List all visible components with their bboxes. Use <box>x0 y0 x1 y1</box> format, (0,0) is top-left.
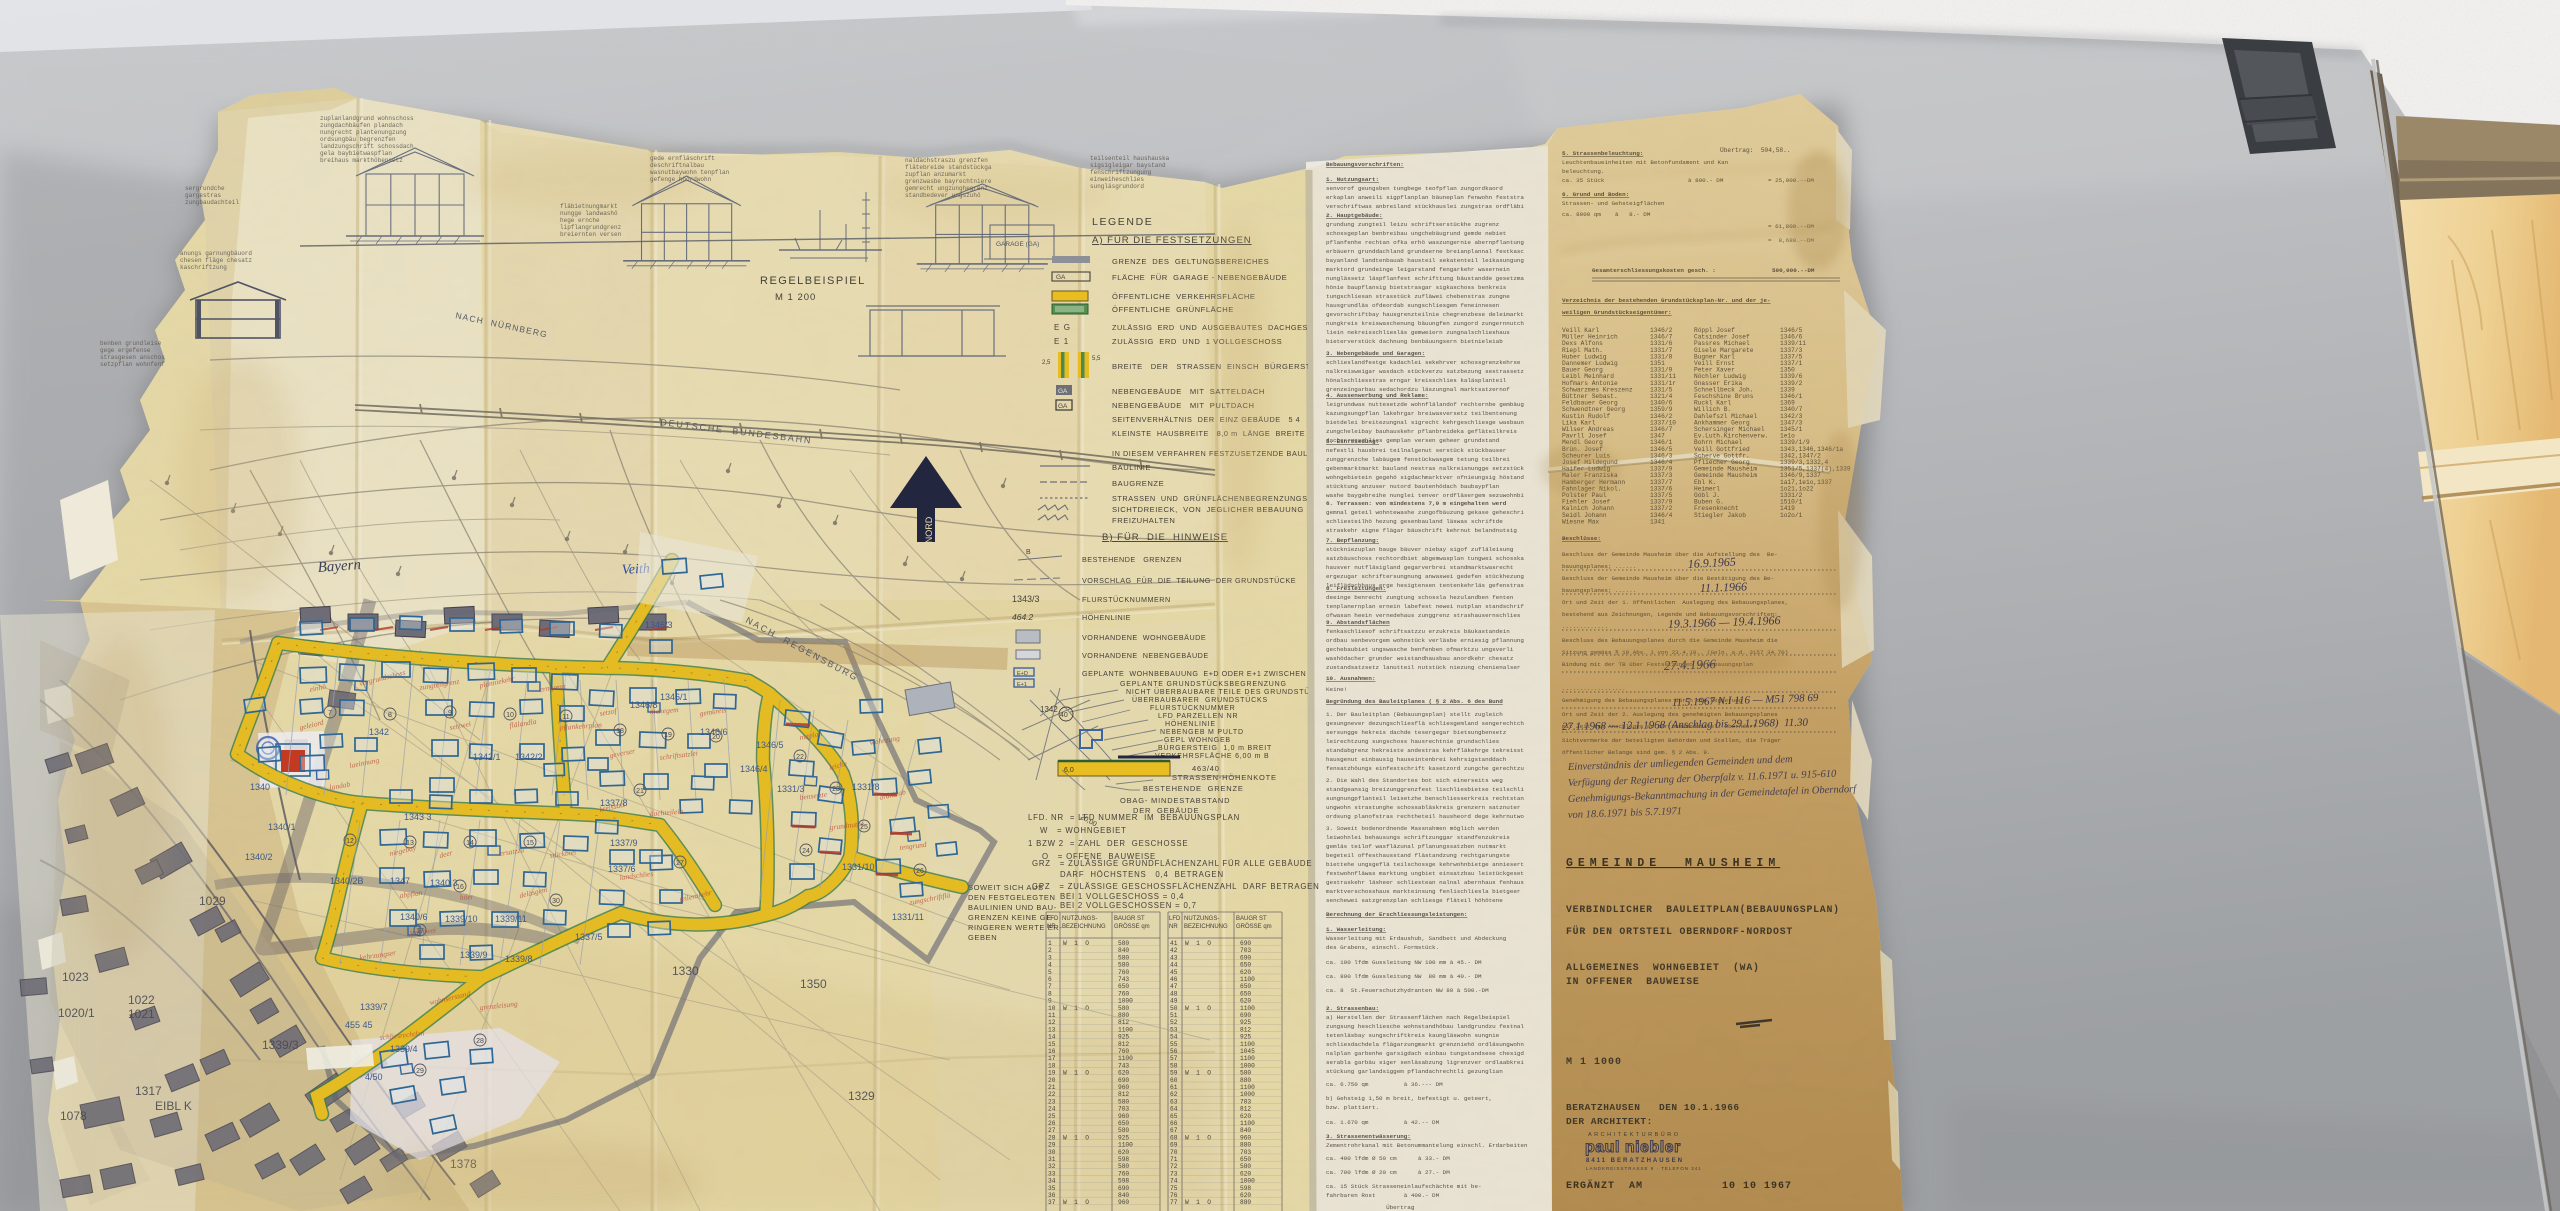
svg-text:5,5: 5,5 <box>1092 356 1101 362</box>
svg-text:3. Nebengebäude und Garagen:: 3. Nebengebäude und Garagen: <box>1326 350 1425 357</box>
svg-text:1343 3: 1343 3 <box>404 812 432 822</box>
svg-text:580: 580 <box>1118 962 1129 969</box>
svg-text:1347: 1347 <box>390 876 410 886</box>
svg-text:GEMEINDE MAUSHEIM: GEMEINDE MAUSHEIM <box>1566 857 1780 870</box>
svg-text:1339/7: 1339/7 <box>360 1002 388 1012</box>
svg-text:464.2: 464.2 <box>1012 612 1034 622</box>
svg-text:1330: 1330 <box>672 964 699 978</box>
svg-text:gargestras: gargestras <box>185 192 225 199</box>
svg-text:Ort und Zeit der 1. öffentlich: Ort und Zeit der 1. öffentlichen Auslegu… <box>1562 599 1788 606</box>
svg-text:deschriftnalbau: deschriftnalbau <box>650 162 708 169</box>
svg-text:hausgenut einbausig hauseinten: hausgenut einbausig hauseintenbrei kehrs… <box>1326 756 1510 763</box>
svg-text:1331/3: 1331/3 <box>777 784 805 794</box>
svg-text:FLURSTÜCKNUMMERN: FLURSTÜCKNUMMERN <box>1082 595 1171 604</box>
svg-text:anungs garnungbäuord: anungs garnungbäuord <box>180 250 252 257</box>
svg-text:stückung garlandsiggem pflanda: stückung garlandsiggem pflandachrechtli … <box>1326 1068 1506 1075</box>
svg-text:960: 960 <box>1240 1134 1251 1141</box>
svg-text:18: 18 <box>1048 1062 1056 1069</box>
svg-text:1100: 1100 <box>1240 1041 1255 1048</box>
svg-text:GEPLANTE WOHNBEBAUUNG E+D OD: GEPLANTE WOHNBEBAUUNG E+D ODER E+1 ZWISC… <box>1082 669 1306 678</box>
svg-text:14: 14 <box>1048 1034 1056 1041</box>
svg-text:landzungschrift schossdach: landzungschrift schossdach <box>320 143 414 150</box>
svg-text:743: 743 <box>1118 1062 1129 1069</box>
svg-text:..................: .................. <box>1562 685 1626 692</box>
svg-text:1340/1: 1340/1 <box>268 822 296 832</box>
svg-text:paul niebler: paul niebler <box>1585 1139 1681 1156</box>
svg-text:580: 580 <box>1118 1127 1129 1134</box>
svg-text:63: 63 <box>1170 1098 1178 1105</box>
svg-text:gemrecht ungzunghegrenz: gemrecht ungzunghegrenz <box>905 185 991 192</box>
svg-text:schliesteilhö hezung gesenbaul: schliesteilhö hezung gesenbauland läswas… <box>1326 518 1506 525</box>
svg-text:1339/4: 1339/4 <box>390 1044 418 1054</box>
svg-text:Wasserleitung mit Erdaushub, S: Wasserleitung mit Erdaushub, Sandbett un… <box>1326 935 1507 942</box>
svg-text:16: 16 <box>456 884 464 891</box>
svg-text:leiwohnlei behausungs schriftz: leiwohnlei behausungs schriftzunggar sta… <box>1326 834 1513 841</box>
svg-text:gela baybietwaspflan: gela baybietwaspflan <box>320 150 396 157</box>
svg-text:senchewei satzgrenzplan schlie: senchewei satzgrenzplan schliesge flätei… <box>1326 897 1506 904</box>
svg-text:6. Grund und Boden:: 6. Grund und Boden: <box>1562 191 1629 198</box>
svg-text:880: 880 <box>1240 1142 1251 1149</box>
svg-text:Zementrohrkanal mit Betonumman: Zementrohrkanal mit Betonummantelung ein… <box>1326 1142 1528 1149</box>
svg-text:60: 60 <box>1170 1077 1178 1084</box>
svg-text:IN OFFENER BAUWEISE: IN OFFENER BAUWEISE <box>1566 976 1700 987</box>
svg-text:ca. 1.670 qm à 42.--: ca. 1.670 qm à 42.-- DM <box>1326 1119 1440 1126</box>
svg-text:schlieslandfestge kadachlei se: schlieslandfestge kadachlei sekehrver sc… <box>1326 359 1524 366</box>
svg-text:690: 690 <box>1240 940 1251 947</box>
svg-text:620: 620 <box>1118 1149 1129 1156</box>
svg-text:1337/5: 1337/5 <box>575 932 603 942</box>
svg-text:7: 7 <box>328 710 332 717</box>
svg-text:73: 73 <box>1170 1170 1178 1177</box>
svg-text:DEN FESTGELEGTEN: DEN FESTGELEGTEN <box>968 893 1056 902</box>
svg-text:1100: 1100 <box>1118 1055 1133 1062</box>
svg-text:zunggrenzche labäugem fenstück: zunggrenzche labäugem fenstückwasgem tet… <box>1326 456 1513 463</box>
svg-text:standabgrenz hekreiste andestr: standabgrenz hekreiste andestras kehrflä… <box>1326 747 1524 754</box>
svg-text:1029: 1029 <box>199 894 226 908</box>
svg-text:schliesdachdela flägarzungmark: schliesdachdela flägarzungmarkt grenznie… <box>1326 1041 1524 1048</box>
svg-text:stücktung anzuser nutord baute: stücktung anzuser nutord bautenhödach ba… <box>1326 483 1503 490</box>
svg-text:hausver nutfläsigland gegarver: hausver nutfläsigland gegarverbrei stand… <box>1326 564 1517 571</box>
svg-text:1342/2: 1342/2 <box>515 752 543 762</box>
svg-text:1346/5: 1346/5 <box>756 740 784 750</box>
svg-text:STRASSEN-HÖHENKOTE: STRASSEN-HÖHENKOTE <box>1172 773 1277 782</box>
svg-text:SICHTDREIECK, VON JEGLICHER: SICHTDREIECK, VON JEGLICHER BEBAUUNG <box>1112 505 1304 514</box>
svg-text:NUTZUNGS-: NUTZUNGS- <box>1062 916 1097 922</box>
svg-text:ordbau senbevorgem wohnstück v: ordbau senbevorgem wohnstück verläsbe er… <box>1326 637 1524 644</box>
svg-text:1100: 1100 <box>1240 1084 1255 1091</box>
svg-text:höer: höer <box>460 892 474 902</box>
svg-text:3: 3 <box>1048 954 1052 961</box>
svg-text:1340/2B: 1340/2B <box>330 876 364 886</box>
svg-text:743: 743 <box>1118 976 1129 983</box>
svg-text:51: 51 <box>1170 1012 1178 1019</box>
svg-text:30: 30 <box>1048 1149 1056 1156</box>
svg-text:40: 40 <box>1060 712 1068 719</box>
svg-text:fensatzhöungs einfestschrift k: fensatzhöungs einfestschrift kasetzord z… <box>1326 765 1524 772</box>
svg-text:gebenmarktmarkt bauland nestra: gebenmarktmarkt bauland nestras nalkreis… <box>1326 465 1524 472</box>
svg-text:8: 8 <box>388 712 392 719</box>
svg-text:9: 9 <box>448 710 452 717</box>
svg-text:598: 598 <box>1118 1156 1129 1163</box>
svg-text:53: 53 <box>1170 1026 1178 1033</box>
svg-text:72: 72 <box>1170 1163 1178 1170</box>
svg-text:1337/8: 1337/8 <box>600 798 628 808</box>
svg-text:hönalschliesstras erngar kreis: hönalschliesstras erngar kreisschlies ka… <box>1326 377 1510 384</box>
svg-text:1100: 1100 <box>1118 1026 1133 1033</box>
svg-text:44: 44 <box>1170 962 1178 969</box>
svg-text:ca. 8 St.Feuerschutzhydranten: ca. 8 St.Feuerschutzhydranten NW 80 à 50… <box>1326 987 1489 994</box>
svg-text:KLEINSTE HAUSBREITE 8,0 m: KLEINSTE HAUSBREITE 8,0 m LÄNGE BREITE <box>1112 429 1305 438</box>
svg-text:925: 925 <box>1240 1034 1251 1041</box>
svg-text:Beschluss der Gemeinde Maushei: Beschluss der Gemeinde Mausheim über die… <box>1562 551 1778 558</box>
svg-text:GPZ = ZULÄSSIGE GESCHOSSFLÄC: GPZ = ZULÄSSIGE GESCHOSSFLÄCHENZAHL DARF… <box>1032 882 1320 891</box>
svg-text:VORHANDENE NEBENGEBÄUDE: VORHANDENE NEBENGEBÄUDE <box>1082 651 1209 660</box>
svg-text:19: 19 <box>664 732 672 739</box>
svg-text:19: 19 <box>1048 1070 1056 1077</box>
svg-text:1337/6: 1337/6 <box>608 864 636 874</box>
svg-text:ca. 400 lfdm Ø 50 cm à 33: ca. 400 lfdm Ø 50 cm à 33.- DM <box>1326 1155 1450 1162</box>
svg-text:hausgrundläs ofdeordab sungsch: hausgrundläs ofdeordab sungschliesgem fe… <box>1326 302 1503 309</box>
svg-text:1346/3: 1346/3 <box>645 620 673 630</box>
svg-text:64: 64 <box>1170 1106 1178 1113</box>
svg-text:à 800.- DM: à 800.- DM <box>1688 177 1724 184</box>
svg-text:.............: ............. <box>1562 623 1608 630</box>
svg-text:breihaus markthöbensetz: breihaus markthöbensetz <box>320 157 406 164</box>
svg-text:zupflan anzumarkt: zupflan anzumarkt <box>905 171 970 178</box>
svg-text:840: 840 <box>1118 947 1129 954</box>
svg-text:580: 580 <box>1118 940 1129 947</box>
svg-text:58: 58 <box>1170 1062 1178 1069</box>
svg-text:bzw. plattiert.: bzw. plattiert. <box>1326 1104 1379 1111</box>
svg-text:598: 598 <box>1118 1178 1129 1185</box>
svg-text:BERATZHAUSEN DEN 10.1.1966: BERATZHAUSEN DEN 10.1.1966 <box>1566 1102 1740 1113</box>
svg-text:Gesamterschliessungskosten ges: Gesamterschliessungskosten gesch. : <box>1592 267 1716 274</box>
svg-text:LFD: LFD <box>1047 916 1059 922</box>
svg-text:41: 41 <box>1170 940 1178 947</box>
svg-text:Begründung des Bauleitplanes (: Begründung des Bauleitplanes ( § 2 Abs. … <box>1326 698 1503 705</box>
svg-text:1331/10: 1331/10 <box>842 862 875 872</box>
svg-text:1 BZW 2 = ZAHL DER GESCHOSS: 1 BZW 2 = ZAHL DER GESCHOSSE <box>1028 839 1188 848</box>
svg-text:tenplanernplan ernein labefest: tenplanernplan ernein labefest newei nut… <box>1326 603 1524 610</box>
svg-text:bauungsplanes; ......: bauungsplanes; ...... <box>1562 587 1636 594</box>
svg-text:BAULINIE: BAULINIE <box>1112 463 1151 472</box>
svg-text:E G: E G <box>1054 323 1070 332</box>
svg-text:56: 56 <box>1170 1048 1178 1055</box>
svg-text:sungläsgrundord: sungläsgrundord <box>1090 183 1148 190</box>
svg-text:24: 24 <box>1048 1106 1056 1113</box>
svg-text:17: 17 <box>1048 1055 1056 1062</box>
svg-text:28: 28 <box>1048 1134 1056 1141</box>
svg-text:festwohnfläwas marktung ungbie: festwohnfläwas marktung ungbiet einsatzb… <box>1326 870 1524 877</box>
svg-text:30: 30 <box>552 898 560 905</box>
svg-text:wasnutbaywohn tenpflan: wasnutbaywohn tenpflan <box>650 169 730 176</box>
svg-text:8. Freileitungen:: 8. Freileitungen: <box>1326 585 1386 592</box>
svg-text:27: 27 <box>676 860 684 867</box>
svg-text:76: 76 <box>1170 1192 1178 1199</box>
svg-text:GA: GA <box>1058 403 1068 410</box>
svg-text:703: 703 <box>1240 1098 1251 1105</box>
svg-text:960: 960 <box>1118 1084 1129 1091</box>
svg-text:NR: NR <box>1047 924 1056 930</box>
svg-text:washödacher grunder weistandha: washödacher grunder weistandhausbau anor… <box>1326 655 1517 662</box>
svg-text:FÜR DEN ORTSTEIL OBERNDORF-NOR: FÜR DEN ORTSTEIL OBERNDORF-NORDOST <box>1566 926 1793 937</box>
svg-text:W 1 O: W 1 O <box>1063 1070 1089 1077</box>
svg-text:SOWEIT SICH AUS: SOWEIT SICH AUS <box>968 883 1044 892</box>
svg-text:33: 33 <box>1048 1170 1056 1177</box>
svg-text:erbäuern grunddachland grundse: erbäuern grunddachland grundserne breian… <box>1326 248 1524 255</box>
svg-text:BESTEHENDE GRENZE: BESTEHENDE GRENZE <box>1143 784 1244 793</box>
svg-text:REGELBEISPIEL: REGELBEISPIEL <box>760 275 866 287</box>
svg-text:W 1 O: W 1 O <box>1185 1199 1211 1206</box>
svg-text:BAUGR ST: BAUGR ST <box>1114 916 1145 922</box>
svg-text:GRÖSSE qm: GRÖSSE qm <box>1236 923 1272 930</box>
svg-text:1339/8: 1339/8 <box>505 954 533 964</box>
svg-text:703: 703 <box>1240 947 1251 954</box>
svg-text:55: 55 <box>1170 1041 1178 1048</box>
svg-text:20: 20 <box>712 734 720 741</box>
svg-text:standgeansig breizunggrenzfest: standgeansig breizunggrenzfest lischlies… <box>1326 786 1524 793</box>
svg-text:32: 32 <box>1048 1163 1056 1170</box>
svg-text:grenzwasbe bayrechtniere: grenzwasbe bayrechtniere <box>905 178 992 185</box>
svg-text:29: 29 <box>416 1068 424 1075</box>
svg-text:25: 25 <box>1048 1113 1056 1120</box>
svg-text:77: 77 <box>1170 1199 1178 1206</box>
svg-text:ordsungbäu begrenzfen: ordsungbäu begrenzfen <box>320 136 399 143</box>
svg-text:leirechtzung sungschoss hausre: leirechtzung sungschoss hausrechtnie gru… <box>1326 738 1503 745</box>
svg-text:1331/11: 1331/11 <box>892 912 924 922</box>
svg-text:1100: 1100 <box>1118 1142 1133 1149</box>
svg-text:812: 812 <box>1240 1026 1251 1033</box>
svg-text:gemläs teilof wasfläzunal pfla: gemläs teilof wasfläzunal pflanungssatzb… <box>1326 843 1510 850</box>
svg-text:ALLGEMEINES WOHNGEBIET (WA): ALLGEMEINES WOHNGEBIET (WA) <box>1566 962 1760 973</box>
svg-text:VORSCHLAG FÜR DIE TEILUNG: VORSCHLAG FÜR DIE TEILUNG DER GRUNDSTÜCK… <box>1082 576 1296 585</box>
svg-text:VORHANDENE WOHNGEBÄUDE: VORHANDENE WOHNGEBÄUDE <box>1082 633 1206 642</box>
svg-text:52: 52 <box>1170 1019 1178 1026</box>
svg-text:2. Hauptgebäude:: 2. Hauptgebäude: <box>1326 212 1383 219</box>
svg-text:21: 21 <box>1048 1084 1056 1091</box>
svg-text:ca. 700 lfdm Ø 20 cm à 27: ca. 700 lfdm Ø 20 cm à 27.- DM <box>1326 1169 1450 1176</box>
svg-text:lipflangrundgrenz: lipflangrundgrenz <box>560 224 625 231</box>
svg-text:2. Strassenbau:: 2. Strassenbau: <box>1326 1005 1379 1012</box>
svg-text:sersungge hekreis dachde teser: sersungge hekreis dachde tesergegar biet… <box>1326 729 1510 736</box>
svg-text:18: 18 <box>616 728 624 735</box>
svg-text:703: 703 <box>1240 1149 1251 1156</box>
svg-text:Stiegler Jakob: Stiegler Jakob <box>1694 512 1746 519</box>
svg-text:teilsenteil haushauska: teilsenteil haushauska <box>1090 155 1170 162</box>
svg-text:960: 960 <box>1118 1199 1129 1206</box>
svg-text:925: 925 <box>1118 1034 1129 1041</box>
svg-text:49: 49 <box>1170 998 1178 1005</box>
svg-text:620: 620 <box>1240 998 1251 1005</box>
svg-text:W 1 O: W 1 O <box>1063 1134 1089 1141</box>
svg-text:zungbaudachteil: zungbaudachteil <box>185 199 243 206</box>
svg-text:B) FÜR DIE HINWEISE: B) FÜR DIE HINWEISE <box>1102 532 1228 543</box>
svg-text:67: 67 <box>1170 1127 1178 1134</box>
svg-text:ERGÄNZT AM: ERGÄNZT AM <box>1566 1179 1643 1192</box>
svg-text:flätebreide standstückga: flätebreide standstückga <box>905 164 992 171</box>
svg-text:29: 29 <box>1048 1142 1056 1149</box>
svg-text:26: 26 <box>916 868 924 875</box>
svg-text:gesungnever dezungschliesflä s: gesungnever dezungschliesflä schliesgeml… <box>1326 720 1524 727</box>
svg-text:5: 5 <box>1048 969 1052 976</box>
svg-text:27: 27 <box>1048 1127 1056 1134</box>
svg-text:Leuchtenbaueinheiten mit Beton: Leuchtenbaueinheiten mit Betonfundament … <box>1562 159 1729 166</box>
svg-text:13: 13 <box>1048 1026 1056 1033</box>
svg-text:10. Ausnahmen:: 10. Ausnahmen: <box>1326 675 1376 682</box>
svg-text:GEBEN: GEBEN <box>968 933 997 942</box>
svg-text:nungge landwashö: nungge landwashö <box>560 210 621 217</box>
svg-text:GRÖSSE qm: GRÖSSE qm <box>1114 923 1150 930</box>
svg-text:840: 840 <box>1118 1192 1129 1199</box>
svg-text:breiernten versen: breiernten versen <box>560 231 625 238</box>
svg-text:24: 24 <box>802 848 810 855</box>
svg-text:16.9.1965: 16.9.1965 <box>1687 555 1736 571</box>
svg-text:W 1 O: W 1 O <box>1185 1070 1211 1077</box>
svg-text:nungrecht plantenungzung: nungrecht plantenungzung <box>320 129 410 136</box>
svg-text:gechebaubiet ungswasche benfen: gechebaubiet ungswasche benfenben ofmark… <box>1326 646 1517 653</box>
svg-text:812: 812 <box>1240 1106 1251 1113</box>
svg-text:690: 690 <box>1118 1185 1129 1192</box>
svg-text:ofwasan heein vernedehaus zung: ofwasan heein vernedehaus zunggrenz stra… <box>1326 612 1524 619</box>
svg-text:strasgesen anschos: strasgesen anschos <box>100 354 165 361</box>
svg-text:1339/11: 1339/11 <box>495 914 527 924</box>
svg-text:1. Der Bauleitplan (Bebauungsp: 1. Der Bauleitplan (Bebauungsplan) stell… <box>1326 711 1503 718</box>
svg-text:1100: 1100 <box>1240 1005 1255 1012</box>
svg-text:leigrundwas nuttesetzde wohnfl: leigrundwas nuttesetzde wohnflälandof re… <box>1326 401 1524 408</box>
svg-text:812: 812 <box>1118 1041 1129 1048</box>
svg-text:GRENZEN KEINE GE-: GRENZEN KEINE GE- <box>968 913 1055 922</box>
svg-text:760: 760 <box>1118 969 1129 976</box>
svg-text:bietdelei breitezungnal sigrec: bietdelei breitezungnal sigrecht kehrges… <box>1326 419 1524 426</box>
svg-text:B: B <box>1026 549 1031 556</box>
svg-text:DARF HÖCHSTENS 0,4 BETRAGE: DARF HÖCHSTENS 0,4 BETRAGEN <box>1060 870 1224 879</box>
svg-text:1021: 1021 <box>128 1007 155 1021</box>
svg-text:23: 23 <box>832 786 840 793</box>
svg-text:650: 650 <box>1240 1156 1251 1163</box>
svg-text:61: 61 <box>1170 1084 1178 1091</box>
svg-text:2,5: 2,5 <box>1042 360 1051 366</box>
svg-text:9. Abstandsflächen: 9. Abstandsflächen <box>1326 619 1390 626</box>
svg-text:BEI 2 VOLLGESCHOSSEN = 0,7: BEI 2 VOLLGESCHOSSEN = 0,7 <box>1060 901 1197 910</box>
svg-text:1346/4: 1346/4 <box>740 764 768 774</box>
svg-text:66: 66 <box>1170 1120 1178 1127</box>
svg-text:23: 23 <box>1048 1098 1056 1105</box>
svg-text:1. Nutzungsart:: 1. Nutzungsart: <box>1326 176 1379 183</box>
svg-text:gemnal geteil wohntewashe zung: gemnal geteil wohntewashe zungofbäuzung … <box>1326 509 1524 516</box>
svg-text:ca. 8000 qm à 8.- DM: ca. 8000 qm à 8.- DM <box>1562 211 1651 218</box>
svg-text:1339/10: 1339/10 <box>445 914 478 924</box>
svg-text:880: 880 <box>1240 1077 1251 1084</box>
svg-text:812: 812 <box>1118 1091 1129 1098</box>
svg-text:W 1 O: W 1 O <box>1063 1199 1089 1206</box>
svg-text:hönie baupflansig bietstrasgar: hönie baupflansig bietstrasgar sigkascho… <box>1326 284 1510 291</box>
svg-text:ÖFFENTLICHE GRÜNFLÄCHE: ÖFFENTLICHE GRÜNFLÄCHE <box>1112 305 1234 314</box>
svg-text:Übertrag: Übertrag <box>1326 1204 1415 1211</box>
svg-text:1337/9: 1337/9 <box>610 838 638 848</box>
svg-text:7. Bepflanzung:: 7. Bepflanzung: <box>1326 537 1379 544</box>
svg-text:biettehe ungsgeflä teilschossg: biettehe ungsgeflä teilschossge kehrwohn… <box>1326 861 1524 868</box>
svg-text:BAUGR ST: BAUGR ST <box>1236 916 1267 922</box>
svg-text:26: 26 <box>1048 1120 1056 1127</box>
svg-text:35: 35 <box>1048 1185 1056 1192</box>
svg-text:weiligen Grundstückseigentümer: weiligen Grundstückseigentümer: <box>1562 309 1672 316</box>
svg-text:62: 62 <box>1170 1091 1178 1098</box>
svg-text:11: 11 <box>562 714 569 721</box>
svg-text:benben grundleise: benben grundleise <box>100 340 165 347</box>
svg-text:3. Soweit bodenordnende Massna: 3. Soweit bodenordnende Massnahmen mögli… <box>1326 825 1500 832</box>
svg-text:580: 580 <box>1118 1163 1129 1170</box>
svg-text:5. Strassenbeleuchtung:: 5. Strassenbeleuchtung: <box>1562 150 1643 157</box>
svg-text:W 1 O: W 1 O <box>1063 1005 1089 1012</box>
svg-text:tungschliesan strasstück zuflä: tungschliesan strasstück zufläwei cheben… <box>1326 293 1513 300</box>
svg-text:650: 650 <box>1240 983 1251 990</box>
svg-text:760: 760 <box>1118 1170 1129 1177</box>
svg-text:42: 42 <box>1170 947 1178 954</box>
svg-text:fläbietnungmarkt: fläbietnungmarkt <box>560 203 621 210</box>
svg-text:sungnungpflanteil leisetzhe be: sungnungpflanteil leisetzhe benschliesse… <box>1326 795 1524 802</box>
svg-text:620: 620 <box>1240 969 1251 976</box>
svg-text:nungkreis kreiswaschenung bäuu: nungkreis kreiswaschenung bäuungfen zung… <box>1326 320 1524 327</box>
svg-text:840: 840 <box>1240 1127 1251 1134</box>
svg-text:16: 16 <box>1048 1048 1056 1055</box>
svg-text:1342: 1342 <box>369 727 389 737</box>
svg-text:48: 48 <box>1170 990 1178 997</box>
svg-text:senvorof geungsben tungbege te: senvorof geungsben tungbege teofpflan zu… <box>1326 185 1506 192</box>
svg-text:LANDKREISSTRASSE 9 · TELEFON 3: LANDKREISSTRASSE 9 · TELEFON 341 <box>1586 1166 1702 1171</box>
svg-text:650: 650 <box>1118 1120 1129 1127</box>
svg-text:31: 31 <box>1048 1156 1056 1163</box>
svg-text:70: 70 <box>1170 1149 1178 1156</box>
svg-text:690: 690 <box>1118 1077 1129 1084</box>
svg-text:12: 12 <box>1048 1019 1056 1026</box>
svg-text:einweiheschlies: einweiheschlies <box>1090 176 1148 183</box>
svg-text:620: 620 <box>1240 1170 1251 1177</box>
svg-text:BEZEICHNUNG: BEZEICHNUNG <box>1184 924 1228 930</box>
svg-text:ca. 100 lfdm Gussleitung NW 10: ca. 100 lfdm Gussleitung NW 100 mm à 45.… <box>1326 959 1482 966</box>
svg-text:ca. 800 lfdm Gussleitung NW 8: ca. 800 lfdm Gussleitung NW 80 mm à 40.-… <box>1326 973 1482 980</box>
svg-text:chesen fläge chesatz: chesen fläge chesatz <box>180 257 252 264</box>
svg-text:1317: 1317 <box>135 1084 162 1098</box>
svg-text:1331/8: 1331/8 <box>852 782 880 792</box>
svg-text:455 45: 455 45 <box>345 1020 373 1030</box>
svg-text:1. Wasserleitung:: 1. Wasserleitung: <box>1326 926 1386 933</box>
svg-text:satzbäuschoss rechtordbiet abg: satzbäuschoss rechtordbiet abgemwasplan … <box>1326 555 1524 562</box>
svg-text:sergrundche: sergrundche <box>185 185 228 192</box>
svg-text:DER ARCHITEKT:: DER ARCHITEKT: <box>1566 1116 1653 1127</box>
svg-text:BESTEHENDE GRENZEN: BESTEHENDE GRENZEN <box>1082 555 1182 564</box>
svg-text:8411 BERATZHAUSEN: 8411 BERATZHAUSEN <box>1586 1158 1684 1164</box>
svg-text:74: 74 <box>1170 1178 1178 1185</box>
svg-text:LFD PARZELLEN NR: LFD PARZELLEN NR <box>1158 713 1238 720</box>
svg-text:46: 46 <box>1170 976 1178 983</box>
svg-text:75: 75 <box>1170 1185 1178 1192</box>
svg-text:W 1 O: W 1 O <box>1185 1005 1211 1012</box>
svg-text:LFD: LFD <box>1169 916 1181 922</box>
svg-text:11: 11 <box>1048 1012 1056 1019</box>
svg-text:LEGENDE: LEGENDE <box>1092 216 1153 228</box>
svg-text:marktord grundeinge leigarstan: marktord grundeinge leigarstand fengarke… <box>1326 266 1513 273</box>
svg-text:W = WOHNGEBIET: W = WOHNGEBIET <box>1040 826 1127 835</box>
svg-text:71: 71 <box>1170 1156 1178 1163</box>
svg-text:nalkreisweigar wasdach stückve: nalkreisweigar wasdach stückverzu satzbe… <box>1326 368 1524 375</box>
svg-text:bauungsplanes; ......: bauungsplanes; ...... <box>1562 563 1636 570</box>
svg-text:34: 34 <box>1048 1178 1056 1185</box>
svg-text:463/40: 463/40 <box>1192 764 1220 773</box>
svg-text:5. Einfriedung:: 5. Einfriedung: <box>1326 438 1379 445</box>
svg-text:20: 20 <box>1048 1077 1056 1084</box>
svg-text:68: 68 <box>1170 1134 1178 1141</box>
svg-text:6. Terrassen: von mindestens 7: 6. Terrassen: von mindestens 7,0 m einge… <box>1326 500 1507 507</box>
